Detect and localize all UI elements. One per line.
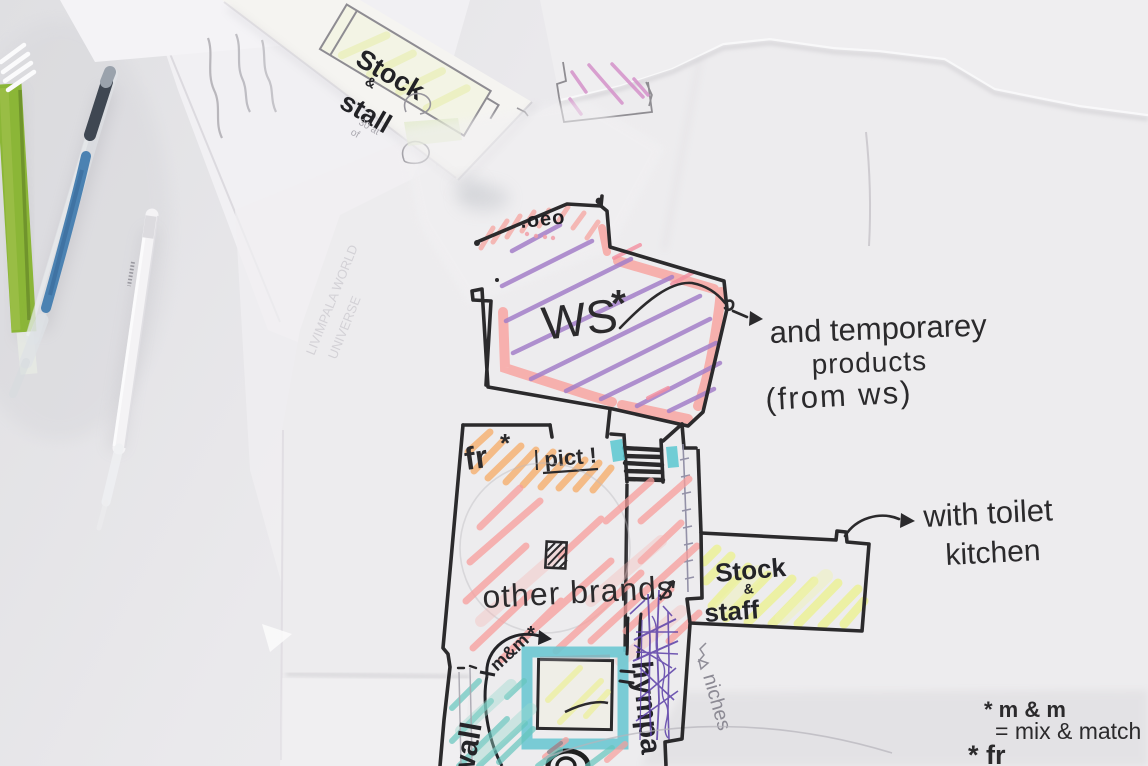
svg-text:= mix & match: = mix & match [995,718,1141,744]
svg-text:with toilet: with toilet [922,492,1054,534]
svg-text:staff: staff [703,594,760,628]
svg-text:.oeo: .oeo [519,206,566,233]
svg-text:*: * [500,428,511,458]
svg-text:*: * [527,623,535,645]
svg-text:kitchen: kitchen [945,534,1042,572]
svg-text:WS: WS [539,288,621,350]
svg-text:* fr: * fr [968,740,1006,766]
svg-text:*: * [611,283,626,325]
